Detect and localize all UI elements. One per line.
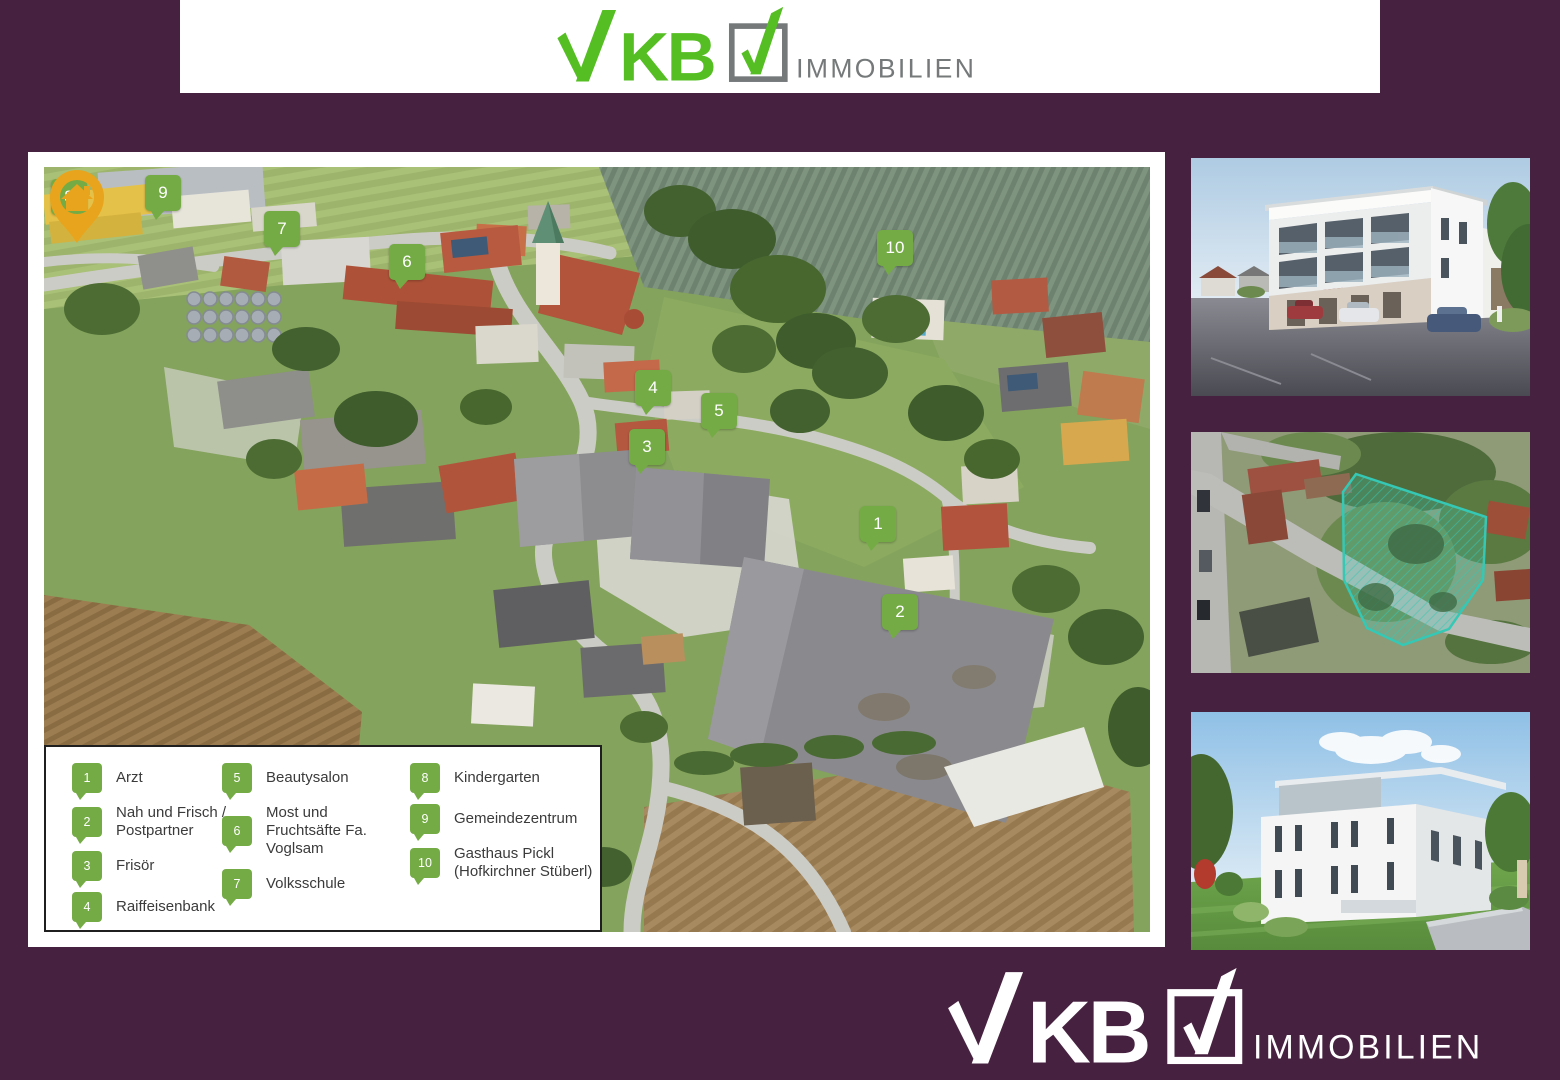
render-front-scene <box>1191 158 1530 396</box>
legend-item-7: 7Volksschule <box>222 869 404 899</box>
checkbox-check-icon <box>732 6 785 78</box>
legend-label: Arzt <box>116 769 143 787</box>
legend-marker-10: 10 <box>410 848 440 878</box>
aerial-photo: 12345678910 1Arzt2Nah und Frisch / Postp… <box>44 167 1150 932</box>
thumbnail-building-render-front <box>1191 158 1530 396</box>
map-marker-2: 2 <box>882 594 918 630</box>
thumbnail-parcel-aerial <box>1191 432 1530 673</box>
legend-item-10: 10Gasthaus Pickl (Hofkirchner Stüberl) <box>410 845 596 881</box>
legend-label: Kindergarten <box>454 769 540 787</box>
legend-label: Most und Fruchtsäfte Fa. Voglsam <box>266 804 404 858</box>
legend-label: Frisör <box>116 857 154 875</box>
vkb-logo-footer: KB IMMOBILIEN <box>945 966 1520 1073</box>
parcel-aerial-scene <box>1191 432 1530 673</box>
legend-marker-8: 8 <box>410 763 440 793</box>
legend-marker-1: 1 <box>72 763 102 793</box>
thumbnail-building-render-garden <box>1191 712 1530 950</box>
legend-marker-4: 4 <box>72 892 102 922</box>
header-banner: KB IMMOBILIEN <box>180 0 1380 93</box>
legend-item-1: 1Arzt <box>72 763 230 793</box>
legend-label: Nah und Frisch / Postpartner <box>116 804 230 840</box>
map-marker-7: 7 <box>264 211 300 247</box>
check-v-glyph <box>948 972 1023 1063</box>
legend-item-5: 5Beautysalon <box>222 763 404 793</box>
map-marker-9: 9 <box>145 175 181 211</box>
legend-label: Gasthaus Pickl (Hofkirchner Stüberl) <box>454 845 596 881</box>
legend-label: Volksschule <box>266 875 345 893</box>
map-marker-10: 10 <box>877 230 913 266</box>
vkb-logo-header: KB IMMOBILIEN <box>555 5 1005 89</box>
map-marker-6: 6 <box>389 244 425 280</box>
legend-marker-7: 7 <box>222 869 252 899</box>
logo-immobilien-text: IMMOBILIEN <box>1253 1028 1483 1066</box>
legend-label: Beautysalon <box>266 769 349 787</box>
legend-item-4: 4Raiffeisenbank <box>72 892 230 922</box>
legend-marker-6: 6 <box>222 816 252 846</box>
flyer-page: KB IMMOBILIEN <box>0 0 1560 1080</box>
legend-marker-2: 2 <box>72 807 102 837</box>
map-marker-5: 5 <box>701 393 737 429</box>
legend-column-1: 1Arzt2Nah und Frisch / Postpartner3Frisö… <box>72 763 230 922</box>
legend-column-3: 8Kindergarten9Gemeindezentrum10Gasthaus … <box>410 763 596 881</box>
legend-column-2: 5Beautysalon6Most und Fruchtsäfte Fa. Vo… <box>222 763 404 899</box>
aerial-photo-frame: 12345678910 1Arzt2Nah und Frisch / Postp… <box>28 152 1165 947</box>
legend-label: Raiffeisenbank <box>116 898 215 916</box>
check-v-glyph <box>557 10 616 82</box>
legend-label: Gemeindezentrum <box>454 810 577 828</box>
legend-item-8: 8Kindergarten <box>410 763 596 793</box>
legend-item-3: 3Frisör <box>72 851 230 881</box>
render-garden-scene <box>1191 712 1530 950</box>
legend-marker-5: 5 <box>222 763 252 793</box>
map-marker-1: 1 <box>860 506 896 542</box>
legend-marker-3: 3 <box>72 851 102 881</box>
map-marker-4: 4 <box>635 370 671 406</box>
legend-item-9: 9Gemeindezentrum <box>410 804 596 834</box>
map-legend: 1Arzt2Nah und Frisch / Postpartner3Frisö… <box>44 745 602 932</box>
legend-item-2: 2Nah und Frisch / Postpartner <box>72 804 230 840</box>
legend-marker-9: 9 <box>410 804 440 834</box>
checkbox-check-icon <box>1171 968 1239 1060</box>
property-pin-icon <box>44 167 110 245</box>
logo-kb-text: KB <box>619 17 714 88</box>
house-icon <box>61 184 93 211</box>
map-marker-3: 3 <box>629 429 665 465</box>
logo-kb-text: KB <box>1027 983 1148 1073</box>
legend-item-6: 6Most und Fruchtsäfte Fa. Voglsam <box>222 804 404 858</box>
logo-immobilien-text: IMMOBILIEN <box>796 53 976 83</box>
